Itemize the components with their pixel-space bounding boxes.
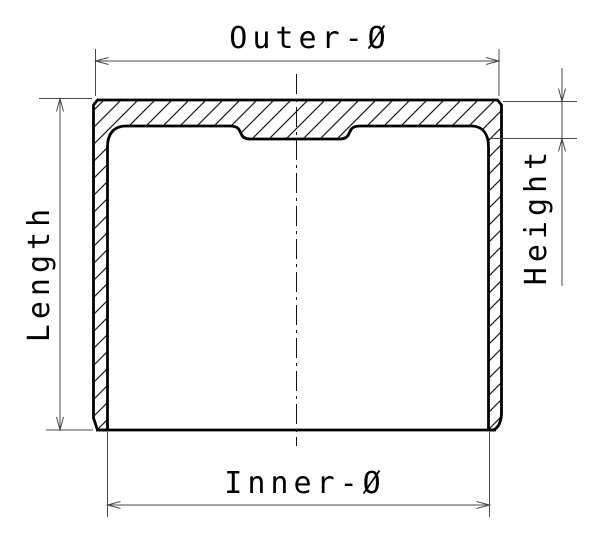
technical-drawing-page: Outer-Ø Length Height Inner-Ø xyxy=(0,0,600,553)
part-body-section xyxy=(94,100,502,430)
length-label: Length xyxy=(22,204,57,342)
part-cross-section xyxy=(94,100,502,430)
length-dimension: Length xyxy=(22,99,93,431)
inner-diameter-label: Inner-Ø xyxy=(224,466,385,501)
inner-diameter-dimension: Inner-Ø xyxy=(108,432,490,517)
drawing-svg: Outer-Ø Length Height Inner-Ø xyxy=(0,0,600,553)
outer-diameter-dimension: Outer-Ø xyxy=(96,21,500,96)
height-label: Height xyxy=(519,147,554,285)
outer-diameter-label: Outer-Ø xyxy=(229,21,390,56)
